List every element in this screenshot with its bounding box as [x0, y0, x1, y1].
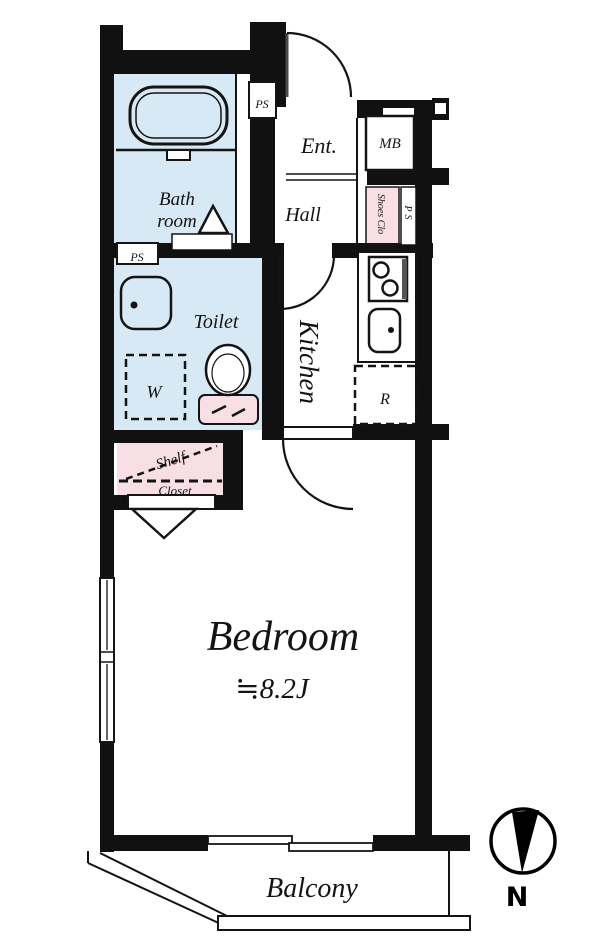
kitchen-label: Kitchen [294, 319, 324, 404]
kitchen-sink-drain [388, 327, 394, 333]
bath-doorway [172, 234, 232, 250]
wall-bedroom-top-right [353, 424, 449, 440]
wall-right-exterior [415, 100, 432, 851]
stove-side-panel [402, 259, 407, 299]
bedroom-label: Bedroom [207, 614, 359, 660]
refrigerator-space-label: R [379, 391, 390, 408]
pipe-space-toilet-label: PS [129, 250, 143, 264]
entrance-label: Ent. [300, 133, 337, 158]
wall-closet-bottom-right [215, 495, 243, 510]
wall-top-left-stub [100, 25, 123, 53]
bath-counter-notch [167, 150, 190, 160]
balcony-window-sash-1 [208, 836, 292, 844]
pipe-space-top-label: PS [254, 97, 268, 111]
right-wall-notch [435, 103, 446, 114]
floor-plan-page: N PS Ent. MB Hall Shoes Clo PS Bath room… [0, 0, 600, 950]
toilet-tank [199, 395, 258, 424]
bedroom-size-label: ≒8.2J [235, 673, 310, 705]
toilet-sink-drain [131, 302, 138, 309]
wall-bedroom-bottom-left [100, 835, 208, 851]
stove-burner-2 [383, 281, 398, 296]
closet-label: Closet [158, 483, 192, 498]
wall-closet-bottom-left [100, 495, 128, 510]
compass-north-label: N [506, 882, 529, 913]
floor-plan-drawing: N PS Ent. MB Hall Shoes Clo PS Bath room… [0, 0, 600, 950]
bedroom-door-leaf [283, 427, 353, 439]
wall-bedroom-bottom-right [373, 835, 470, 851]
bath-label-line2: room [157, 211, 196, 232]
pipe-space-right-label: PS [402, 204, 413, 222]
wall-bedroom-top-left [262, 424, 283, 440]
wall-bath-top [100, 50, 250, 74]
bath-label-line1: Bath [159, 189, 195, 210]
wall-closet-top [100, 430, 243, 443]
shoes-closet-label: Shoes Clo [375, 194, 386, 234]
left-window [100, 578, 114, 742]
balcony-label: Balcony [266, 873, 358, 904]
hall-label: Hall [284, 204, 321, 226]
balcony-window-sash-2 [289, 843, 373, 851]
meter-box-label: MB [378, 136, 401, 152]
washer-space-label: W [147, 382, 164, 402]
stove-burner-1 [374, 263, 389, 278]
toilet-label: Toilet [194, 311, 239, 333]
balcony-bottom-rail [218, 916, 470, 930]
